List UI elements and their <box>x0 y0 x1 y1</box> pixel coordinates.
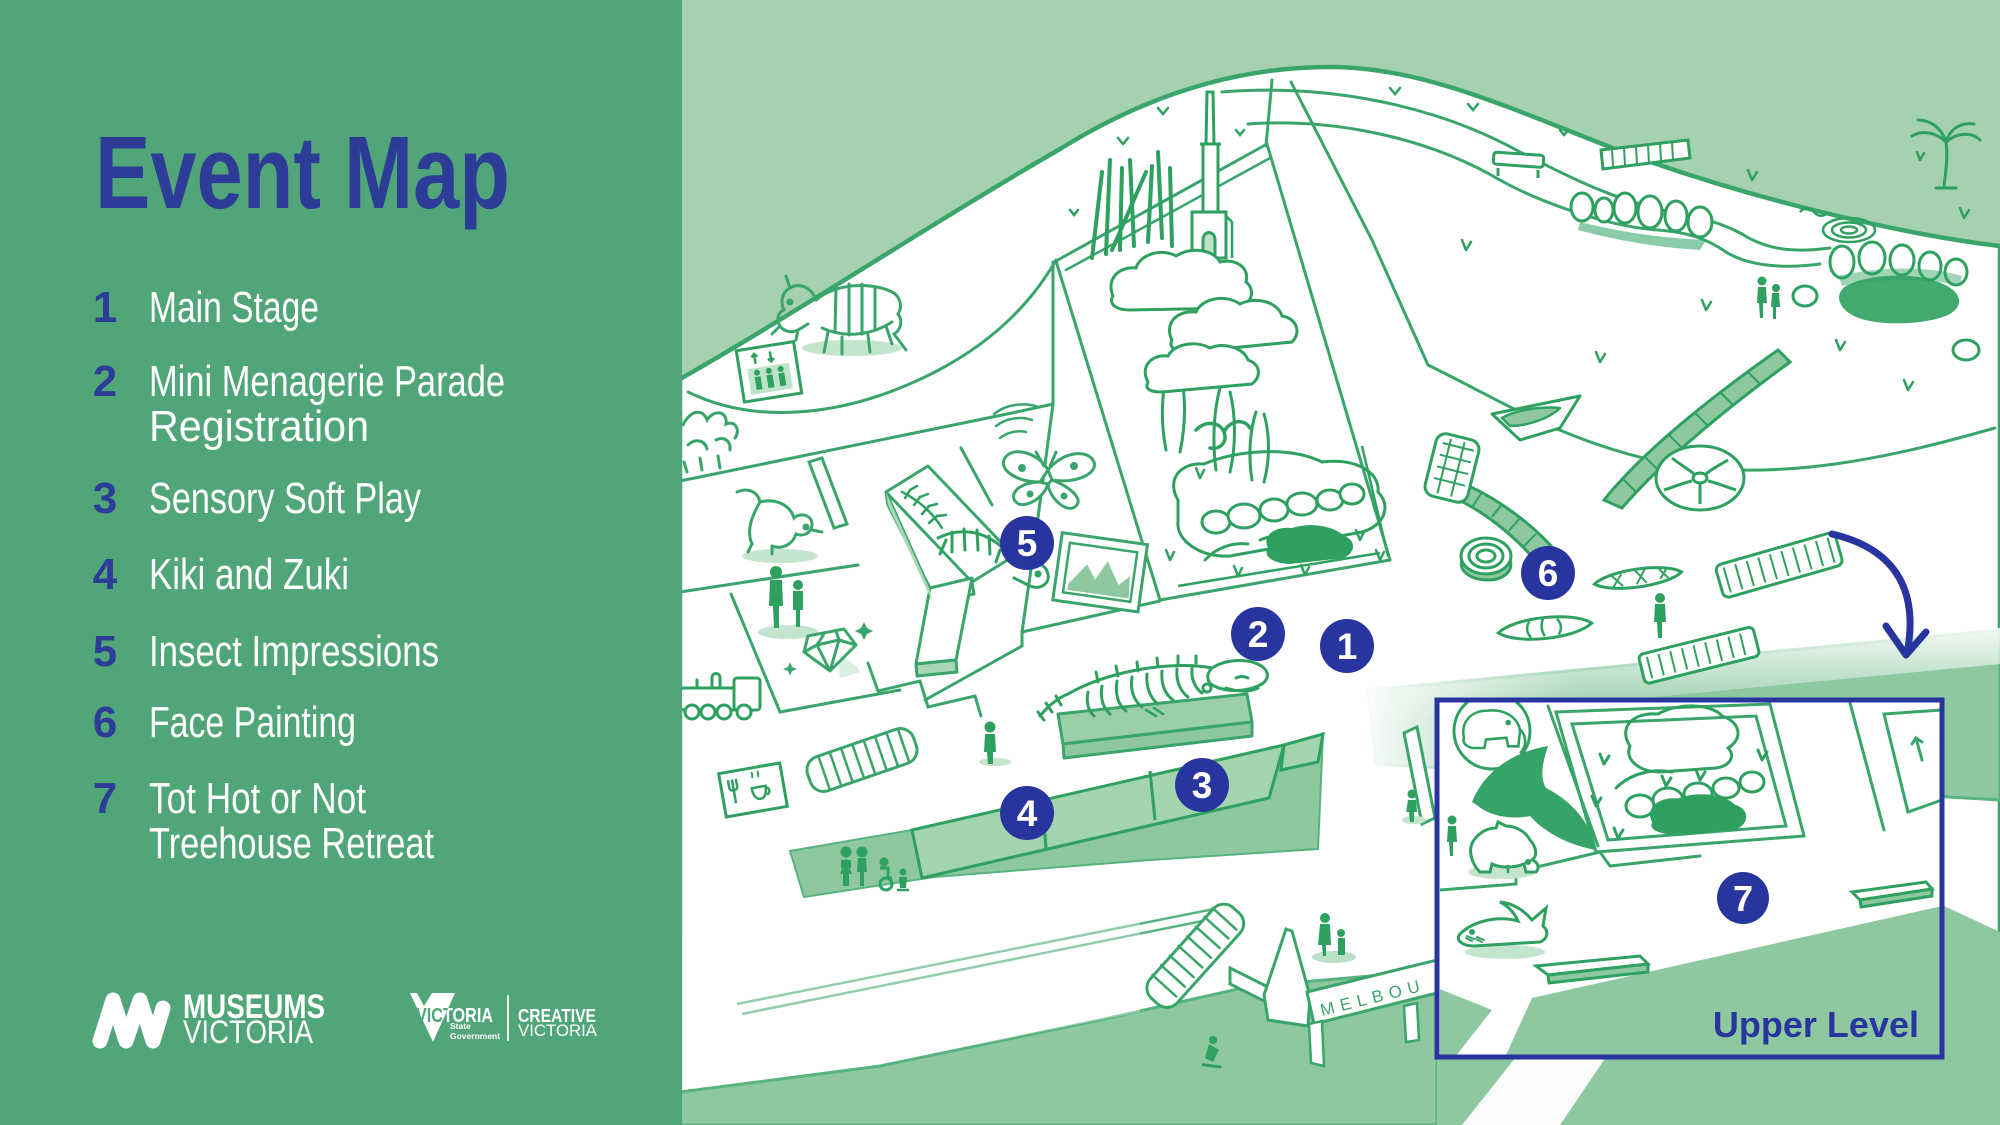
svg-text:1: 1 <box>93 283 117 332</box>
svg-text:Insect Impressions: Insect Impressions <box>149 627 439 676</box>
svg-text:5: 5 <box>93 627 117 676</box>
svg-text:Tot Hot or Not: Tot Hot or Not <box>149 774 366 823</box>
svg-text:3: 3 <box>93 474 117 523</box>
svg-text:Kiki and Zuki: Kiki and Zuki <box>149 550 349 599</box>
svg-text:4: 4 <box>1017 793 1038 834</box>
svg-text:2: 2 <box>93 357 117 406</box>
svg-text:3: 3 <box>1192 765 1213 806</box>
svg-text:Government: Government <box>450 1031 500 1041</box>
svg-text:Sensory Soft Play: Sensory Soft Play <box>149 474 421 523</box>
svg-text:5: 5 <box>1017 523 1038 564</box>
svg-text:Treehouse Retreat: Treehouse Retreat <box>149 819 434 868</box>
svg-text:6: 6 <box>1538 553 1559 594</box>
svg-text:4: 4 <box>93 550 118 599</box>
svg-text:7: 7 <box>1733 878 1753 919</box>
svg-text:Upper Level: Upper Level <box>1713 1004 1919 1045</box>
svg-text:Main Stage: Main Stage <box>149 283 319 332</box>
svg-text:Face Painting: Face Painting <box>149 698 356 747</box>
svg-text:Event Map: Event Map <box>95 115 510 230</box>
svg-text:VICTORIA: VICTORIA <box>518 1021 598 1040</box>
svg-text:6: 6 <box>93 698 117 747</box>
svg-text:State: State <box>450 1021 471 1031</box>
svg-text:7: 7 <box>93 774 117 823</box>
svg-text:Mini Menagerie Parade: Mini Menagerie Parade <box>149 357 505 406</box>
svg-text:1: 1 <box>1337 626 1358 667</box>
svg-text:VICTORIA: VICTORIA <box>183 1014 314 1050</box>
svg-text:2: 2 <box>1248 614 1269 655</box>
svg-text:Registration: Registration <box>149 402 369 451</box>
